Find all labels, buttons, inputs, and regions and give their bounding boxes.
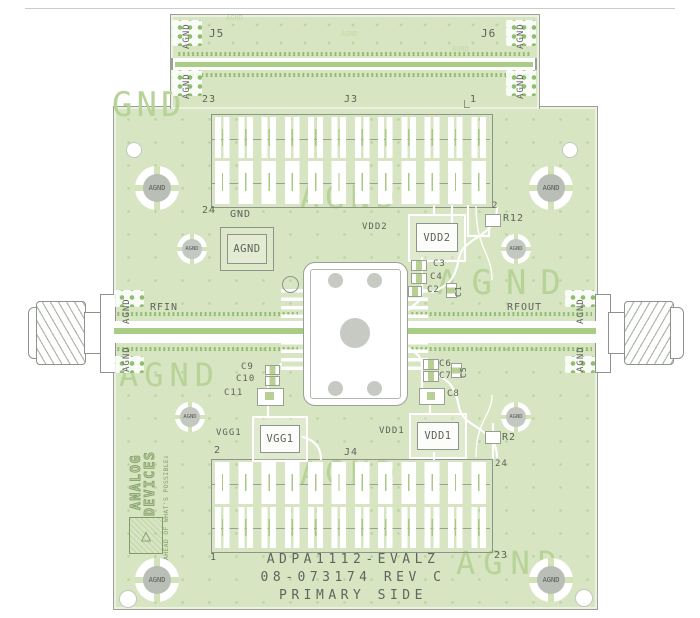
tab-microstrip-trace — [175, 62, 533, 67]
connector-j3-pin-names-bottom — [215, 173, 487, 191]
r12-label: R12 — [503, 214, 524, 224]
c11-label: C11 — [224, 389, 243, 398]
agnd-label-tab-right-bottom: AGND — [517, 69, 526, 99]
logo-triangle-icon: △ — [141, 526, 151, 546]
logo-analog-text: ANALOG — [130, 444, 143, 510]
via-row-rfin-top — [116, 312, 298, 316]
rfin-label: RFIN — [150, 303, 178, 313]
c2-label: C2 — [427, 286, 440, 295]
mounting-hole-bottomleft — [119, 590, 137, 608]
dut-via-bottomright — [367, 381, 382, 396]
capacitor-c9 — [265, 365, 280, 375]
agnd-pad-bottomleft: AGND — [135, 558, 179, 602]
j3-pin23-label: 23 — [202, 95, 216, 105]
j3-pin2-label: 2 — [492, 202, 498, 211]
j4-pin24-label: 24 — [495, 460, 508, 469]
rfout-trace — [403, 328, 596, 334]
watermark-agnd-tab-2: AGND — [341, 30, 358, 38]
c4-label: C4 — [430, 273, 443, 282]
capacitor-c3 — [411, 260, 427, 271]
agnd-pad-small-right-bottom: AGND — [501, 402, 531, 432]
j3-pin24-label: 24 — [202, 206, 216, 216]
agnd-pad-bottomright: AGND — [529, 558, 573, 602]
c8-label: C8 — [447, 390, 460, 399]
agnd-label-tab-right-top: AGND — [517, 19, 526, 49]
capacitor-c7 — [423, 371, 439, 382]
agnd-pad-text: AGND — [506, 239, 526, 259]
watermark-agnd-tab-1: AGND — [226, 14, 243, 22]
agnd-pad-small-right-top: AGND — [501, 234, 531, 264]
analog-devices-logo-icon: △ — [129, 517, 163, 554]
j4-pin23-label: 23 — [494, 551, 508, 561]
c6-label: C6 — [439, 360, 452, 369]
connector-j4-pin-names-top — [215, 474, 487, 491]
c1-label: C1 — [455, 279, 463, 297]
board-part-number: ADPA1112-EVALZ — [233, 553, 473, 566]
agnd-pad-text: AGND — [182, 239, 202, 259]
capacitor-c11 — [257, 388, 284, 406]
agnd-pad-topright: AGND — [529, 166, 573, 210]
connector-j4-label: J4 — [344, 448, 358, 458]
agnd-label-rfin-top: AGND — [123, 292, 132, 324]
connector-j3-label: J3 — [344, 95, 358, 105]
connector-j6-label: J6 — [481, 28, 496, 39]
agnd-pad-text: AGND — [537, 174, 565, 202]
frame-top-border — [25, 8, 675, 9]
connector-j5-label: J5 — [209, 28, 224, 39]
agnd-testpoint: AGND — [227, 234, 267, 264]
via-row-rfout-top — [410, 312, 592, 316]
vdd2-testpoint: VDD2 — [416, 223, 458, 252]
c9-label: C9 — [241, 363, 254, 372]
j3-pin1-label: 1 — [470, 95, 477, 105]
vgg1-silk-label: VGG1 — [216, 429, 242, 438]
agnd-pad-topleft: AGND — [135, 166, 179, 210]
board-doc-number: 08-073174 REV C — [233, 571, 473, 584]
agnd-label-rfout-top: AGND — [577, 292, 586, 324]
mounting-hole-bottomright — [575, 589, 593, 607]
dut-via-topright — [367, 273, 382, 288]
j3-pin1-marker — [464, 100, 470, 108]
agnd-pad-text: AGND — [143, 566, 171, 594]
vdd2-silk-label: VDD2 — [362, 223, 388, 232]
agnd-pad-small-left-top: AGND — [177, 234, 207, 264]
dut-via-center — [340, 318, 370, 348]
resistor-r12 — [485, 214, 501, 227]
agnd-pad-text: AGND — [143, 174, 171, 202]
capacitor-c4 — [411, 273, 427, 284]
resistor-r2 — [485, 431, 501, 444]
c5-label: C5 — [460, 360, 468, 378]
capacitor-c6 — [423, 359, 439, 370]
connector-j3-pin-names-top — [215, 129, 487, 146]
c10-label: C10 — [236, 375, 255, 384]
agnd-label-tab-left-bottom: AGND — [183, 69, 192, 99]
agnd-pad-text: AGND — [506, 407, 526, 427]
dut-via-topleft — [328, 273, 343, 288]
j3-pin24-gnd-label: GND — [230, 210, 251, 220]
j4-pin1-label: 1 — [210, 553, 217, 563]
capacitor-c8 — [419, 388, 445, 405]
rfout-sma-barrel — [624, 301, 674, 365]
rfout-label: RFOUT — [507, 303, 542, 313]
via-row-tab-bottom — [177, 73, 531, 77]
chip-pin-fanout-left-lower — [281, 341, 303, 374]
agnd-pad-small-left-bottom: AGND — [175, 402, 205, 432]
j4-pin2-label: 2 — [214, 446, 221, 456]
vgg1-testpoint: VGG1 — [260, 425, 300, 453]
rfout-sma-cap — [670, 307, 684, 359]
rfin-trace — [114, 328, 307, 334]
logo-devices-text: DEVICES — [144, 444, 157, 516]
dut-via-bottomleft — [328, 381, 343, 396]
c7-label: C7 — [439, 372, 452, 381]
board-side-label: PRIMARY SIDE — [233, 589, 473, 602]
tab-trace-end-left — [171, 58, 173, 70]
logo-tagline: AHEAD OF WHAT'S POSSIBLE™ — [162, 442, 170, 560]
pcb-layout-figure: GND AGND AGND AGND AGND AGND AGND AGND A… — [0, 0, 700, 618]
r2-label: R2 — [502, 433, 516, 443]
c3-label: C3 — [433, 260, 446, 269]
connector-j4-pin-names-bottom — [215, 519, 487, 536]
mounting-hole-topright — [562, 142, 578, 158]
agnd-pad-text: AGND — [180, 407, 200, 427]
via-row-rfin-bottom — [116, 347, 298, 351]
agnd-label-rfout-bottom: AGND — [577, 340, 586, 372]
vdd1-silk-label: VDD1 — [379, 427, 405, 436]
chip-pin-fanout-left-upper — [281, 289, 303, 322]
rfin-sma-barrel — [36, 301, 86, 365]
agnd-pad-text: AGND — [537, 566, 565, 594]
agnd-label-rfin-bottom: AGND — [123, 340, 132, 372]
dut-pin1-marker — [282, 276, 299, 293]
via-row-tab-top — [177, 52, 531, 56]
capacitor-c10 — [265, 376, 280, 386]
tab-trace-end-right — [535, 58, 537, 70]
mounting-hole-topleft — [126, 142, 142, 158]
capacitor-c2 — [408, 286, 422, 297]
via-row-rfout-bottom — [410, 347, 592, 351]
agnd-label-tab-left-top: AGND — [183, 19, 192, 49]
vdd1-testpoint: VDD1 — [417, 422, 459, 450]
